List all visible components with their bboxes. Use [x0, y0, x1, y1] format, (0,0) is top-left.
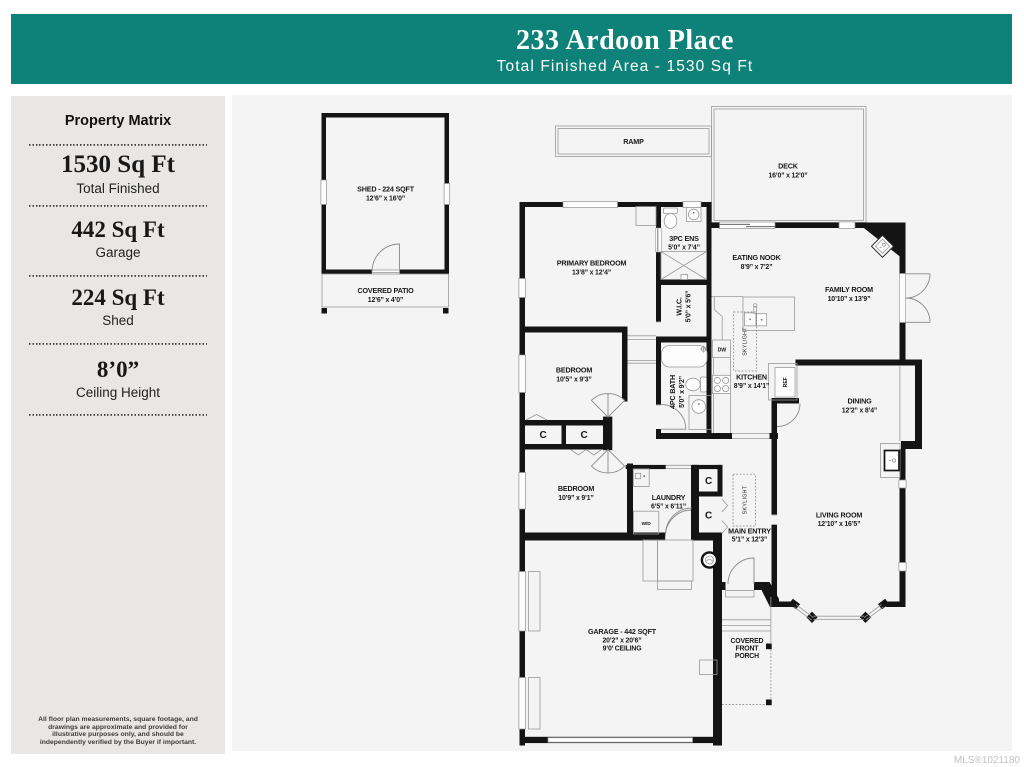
svg-text:10’5” x 9’3”: 10’5” x 9’3”	[556, 376, 591, 383]
svg-text:6’5” x 6’11”: 6’5” x 6’11”	[651, 504, 686, 511]
svg-text:MAIN ENTRY: MAIN ENTRY	[728, 526, 771, 535]
svg-text:8’9” x 14’1”: 8’9” x 14’1”	[734, 383, 769, 390]
svg-text:EATING NOOK: EATING NOOK	[732, 253, 781, 262]
svg-text:4PC BATH: 4PC BATH	[668, 375, 677, 409]
svg-text:20’2” x 20’6”: 20’2” x 20’6”	[602, 637, 641, 644]
svg-text:12’2” x 8’4”: 12’2” x 8’4”	[842, 407, 877, 414]
svg-text:5’1” x 12’3”: 5’1” x 12’3”	[732, 537, 767, 544]
svg-text:C: C	[705, 511, 712, 522]
svg-text:FRONT: FRONT	[735, 646, 759, 653]
svg-text:SKYLIGHT: SKYLIGHT	[743, 485, 749, 514]
svg-text:KITCHEN: KITCHEN	[736, 373, 767, 382]
svg-text:C: C	[539, 430, 546, 441]
svg-text:13’8” x 12’4”: 13’8” x 12’4”	[572, 270, 611, 277]
svg-text:COVERED PATIO: COVERED PATIO	[357, 286, 414, 295]
svg-text:C: C	[580, 430, 587, 441]
svg-text:10’10” x 13’9”: 10’10” x 13’9”	[828, 296, 871, 303]
svg-text:16’0” x 12’0”: 16’0” x 12’0”	[768, 173, 807, 180]
svg-text:DINING: DINING	[847, 397, 872, 406]
svg-text:W/D: W/D	[641, 521, 651, 527]
svg-text:DW: DW	[718, 347, 727, 353]
svg-text:9’0’ CEILING: 9’0’ CEILING	[603, 646, 642, 653]
svg-text:DECK: DECK	[778, 162, 799, 171]
svg-text:PORCH: PORCH	[735, 653, 759, 660]
svg-text:5’0” x 9’2”: 5’0” x 9’2”	[679, 376, 686, 408]
svg-text:REF: REF	[783, 377, 789, 387]
svg-text:12’10” x 16’5”: 12’10” x 16’5”	[818, 521, 861, 528]
svg-text:RAMP: RAMP	[623, 137, 644, 146]
svg-text:3PC ENS: 3PC ENS	[669, 234, 699, 243]
svg-text:SKYLIGHT: SKYLIGHT	[743, 327, 749, 356]
svg-text:10’9” x 9’1”: 10’9” x 9’1”	[558, 495, 593, 502]
svg-text:8’9” x 7’2”: 8’9” x 7’2”	[741, 264, 773, 271]
svg-text:W.I.C.: W.I.C.	[675, 297, 684, 316]
svg-text:GARAGE - 442 SQFT: GARAGE - 442 SQFT	[588, 627, 657, 636]
svg-text:5’0” x 5’6”: 5’0” x 5’6”	[686, 291, 693, 323]
svg-text:BEDROOM: BEDROOM	[558, 484, 594, 493]
svg-text:12’6” x 4’0”: 12’6” x 4’0”	[368, 297, 403, 304]
svg-text:PRIMARY BEDROOM: PRIMARY BEDROOM	[557, 259, 627, 268]
svg-text:BEDROOM: BEDROOM	[556, 366, 592, 375]
svg-text:C: C	[705, 476, 712, 487]
svg-text:COVERED: COVERED	[730, 638, 763, 645]
svg-text:LIVING ROOM: LIVING ROOM	[816, 511, 863, 520]
svg-text:5’0” x 7’4”: 5’0” x 7’4”	[668, 245, 700, 252]
svg-text:LAUNDRY: LAUNDRY	[652, 493, 686, 502]
svg-text:SHED - 224 SQFT: SHED - 224 SQFT	[357, 185, 415, 194]
svg-text:12’6” x 16’0”: 12’6” x 16’0”	[366, 196, 405, 203]
svg-text:FAMILY ROOM: FAMILY ROOM	[825, 285, 873, 294]
